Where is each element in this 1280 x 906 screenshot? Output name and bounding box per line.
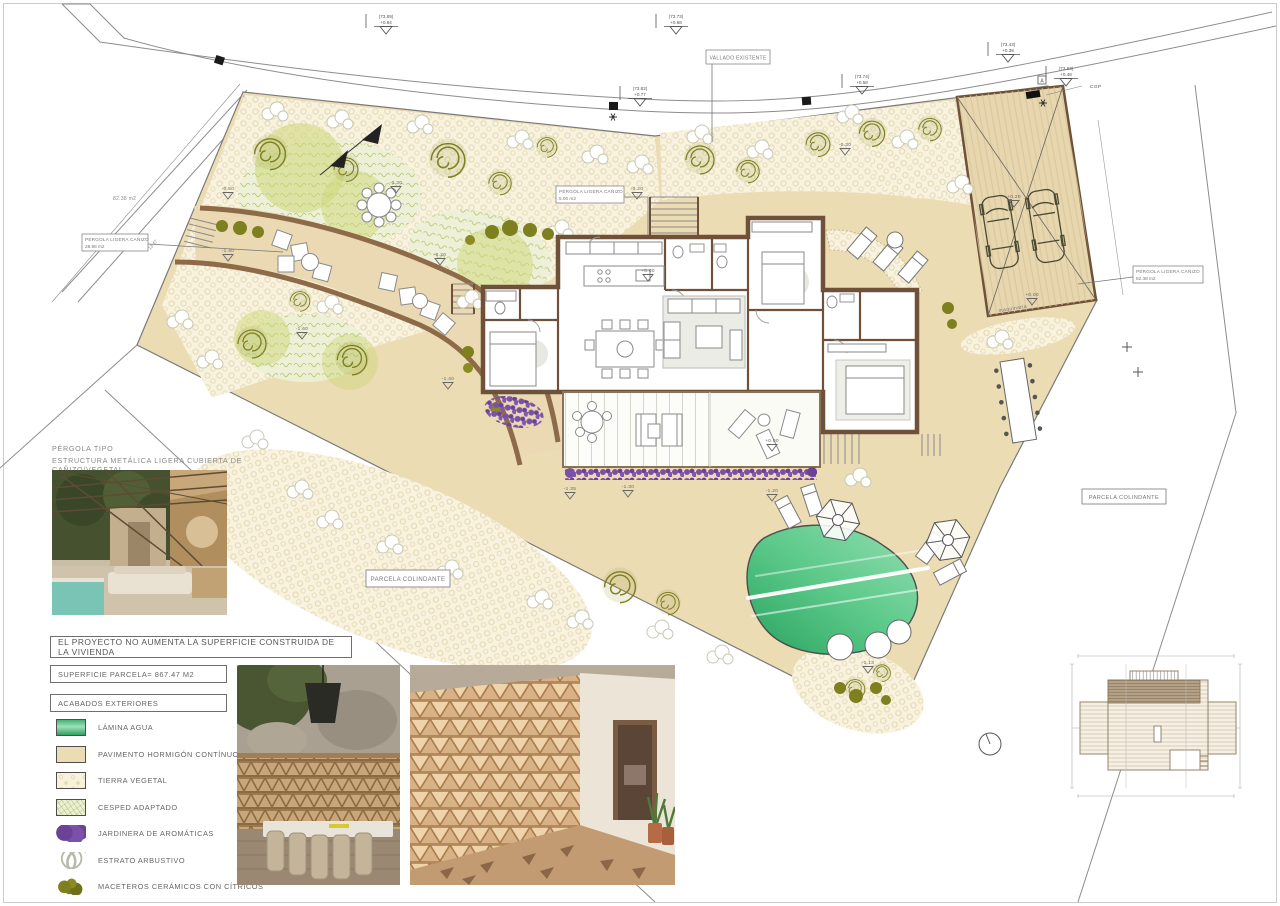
- deck-terrace: [563, 392, 820, 467]
- svg-text:PÉRGOLA LIGERA CAÑIZO: PÉRGOLA LIGERA CAÑIZO: [559, 188, 623, 194]
- survey-marker: (73.73)+0.68: [656, 14, 688, 34]
- side-table: [413, 294, 428, 309]
- survey-marker: (73.43)+0.38: [988, 42, 1020, 62]
- svg-text:(73.43): (73.43): [1001, 42, 1016, 47]
- superficie-text: SUPERFICIE PARCELA= 867.47 M2: [58, 670, 194, 679]
- north-indicator: [979, 733, 1001, 755]
- svg-text:+0.00: +0.00: [1025, 292, 1039, 298]
- svg-text:-0.30: -0.30: [390, 180, 402, 186]
- legend-label: TIERRA VEGETAL: [98, 776, 167, 785]
- area-left-text: 82.38 m2: [113, 196, 136, 202]
- survey-marker: (73.89)+0.84: [366, 14, 398, 34]
- cgp-label: CGP: [1090, 84, 1102, 90]
- estrato-swatch: [56, 852, 86, 869]
- svg-text:+0.84: +0.84: [380, 20, 392, 25]
- lamina-swatch: [56, 719, 86, 736]
- pergola-reference-photo: [52, 470, 227, 615]
- acabados-title: ACABADOS EXTERIORES: [50, 694, 227, 712]
- lattice-terrace-art: [237, 665, 400, 885]
- pergola-tipo-title: PÉRGOLA TIPO: [52, 444, 312, 453]
- side-table: [302, 254, 319, 271]
- svg-text:-1.30: -1.30: [622, 484, 634, 490]
- superficie-parcela: SUPERFICIE PARCELA= 867.47 M2: [50, 665, 227, 683]
- tierra-swatch: [56, 772, 86, 789]
- legend-label: JARDINERA DE AROMÁTICAS: [98, 829, 214, 838]
- svg-text:PARCELA COLINDANTE: PARCELA COLINDANTE: [371, 577, 446, 583]
- svg-text:-1.40: -1.40: [222, 248, 234, 254]
- svg-text:-1.40: -1.40: [442, 376, 454, 382]
- project-note: EL PROYECTO NO AUMENTA LA SUPERFICIE CON…: [50, 636, 352, 658]
- svg-text:PÉRGOLA LIGERA CAÑIZO: PÉRGOLA LIGERA CAÑIZO: [85, 236, 149, 242]
- svg-text:+0.77: +0.77: [634, 92, 646, 97]
- svg-text:+0.68: +0.68: [670, 20, 682, 25]
- legend-label: LÁMINA AGUA: [98, 723, 153, 732]
- acabados-title-text: ACABADOS EXTERIORES: [58, 699, 158, 708]
- svg-text:-1.20: -1.20: [766, 488, 778, 494]
- survey-crosses: [1122, 342, 1143, 377]
- pergola-right-label: PÉRGOLA LIGERA CAÑIZO 82.38 m2: [1078, 266, 1203, 284]
- svg-text:PARCELA COLINDANTE: PARCELA COLINDANTE: [1089, 495, 1159, 501]
- pergola-photo-art: [52, 470, 227, 615]
- svg-text:VALLADO EXISTENTE: VALLADO EXISTENTE: [710, 56, 767, 62]
- maceteros-swatch: [56, 878, 86, 895]
- svg-text:+0.20: +0.20: [1007, 194, 1021, 200]
- svg-text:PÉRGOLA LIGERA CAÑIZO: PÉRGOLA LIGERA CAÑIZO: [1136, 268, 1200, 274]
- lattice-corridor-art: [410, 665, 675, 885]
- svg-text:(73.53): (73.53): [1059, 66, 1074, 71]
- cesped-swatch: [56, 799, 86, 816]
- svg-text:+0.00: +0.00: [641, 268, 655, 274]
- elevation-drawing: [1070, 654, 1242, 798]
- project-note-text: EL PROYECTO NO AUMENTA LA SUPERFICIE CON…: [58, 637, 344, 657]
- svg-text:5.00 m2: 5.00 m2: [559, 196, 576, 201]
- garden-round-table: [357, 183, 401, 227]
- site-plan-sheet: maquinaria: [0, 0, 1280, 906]
- survey-marker: (73.53)+0.48: [1046, 66, 1078, 86]
- legend-label: CESPED ADAPTADO: [98, 803, 178, 812]
- survey-marker: (73.82)+0.77: [620, 86, 652, 106]
- svg-text:+0.00: +0.00: [765, 438, 779, 444]
- svg-text:-1.60: -1.60: [296, 326, 308, 332]
- svg-text:-0.30: -0.30: [839, 142, 851, 148]
- parcela-right-label: PARCELA COLINDANTE: [1082, 489, 1166, 504]
- legend-label: PAVIMENTO HORMIGÓN CONTÍNUO: [98, 750, 239, 759]
- pavimento-swatch: [56, 746, 86, 763]
- lattice-corridor-photo: [410, 665, 675, 885]
- jardinera-swatch: [56, 825, 86, 842]
- svg-text:-0.50: -0.50: [222, 186, 234, 192]
- svg-text:+0.38: +0.38: [1002, 48, 1014, 53]
- svg-text:+0.58: +0.58: [856, 80, 868, 85]
- svg-text:82.38 m2: 82.38 m2: [1136, 276, 1156, 281]
- svg-text:-0.20: -0.20: [434, 252, 446, 258]
- svg-text:28.98 m2: 28.98 m2: [85, 244, 105, 249]
- svg-text:-1.13: -1.13: [862, 660, 874, 666]
- svg-text:-1.35: -1.35: [564, 486, 576, 492]
- lattice-terrace-photo: [237, 665, 400, 885]
- legend-label: ESTRATO ARBUSTIVO: [98, 856, 185, 865]
- svg-text:-0.20: -0.20: [631, 186, 643, 192]
- survey-marker: (73.74)+0.58: [842, 74, 874, 94]
- svg-text:(73.89): (73.89): [379, 14, 394, 19]
- svg-text:(73.74): (73.74): [855, 74, 870, 79]
- parcela-left-label: PARCELA COLINDANTE: [366, 570, 450, 587]
- svg-text:+0.48: +0.48: [1060, 72, 1072, 77]
- svg-text:(73.82): (73.82): [633, 86, 648, 91]
- svg-text:(73.73): (73.73): [669, 14, 684, 19]
